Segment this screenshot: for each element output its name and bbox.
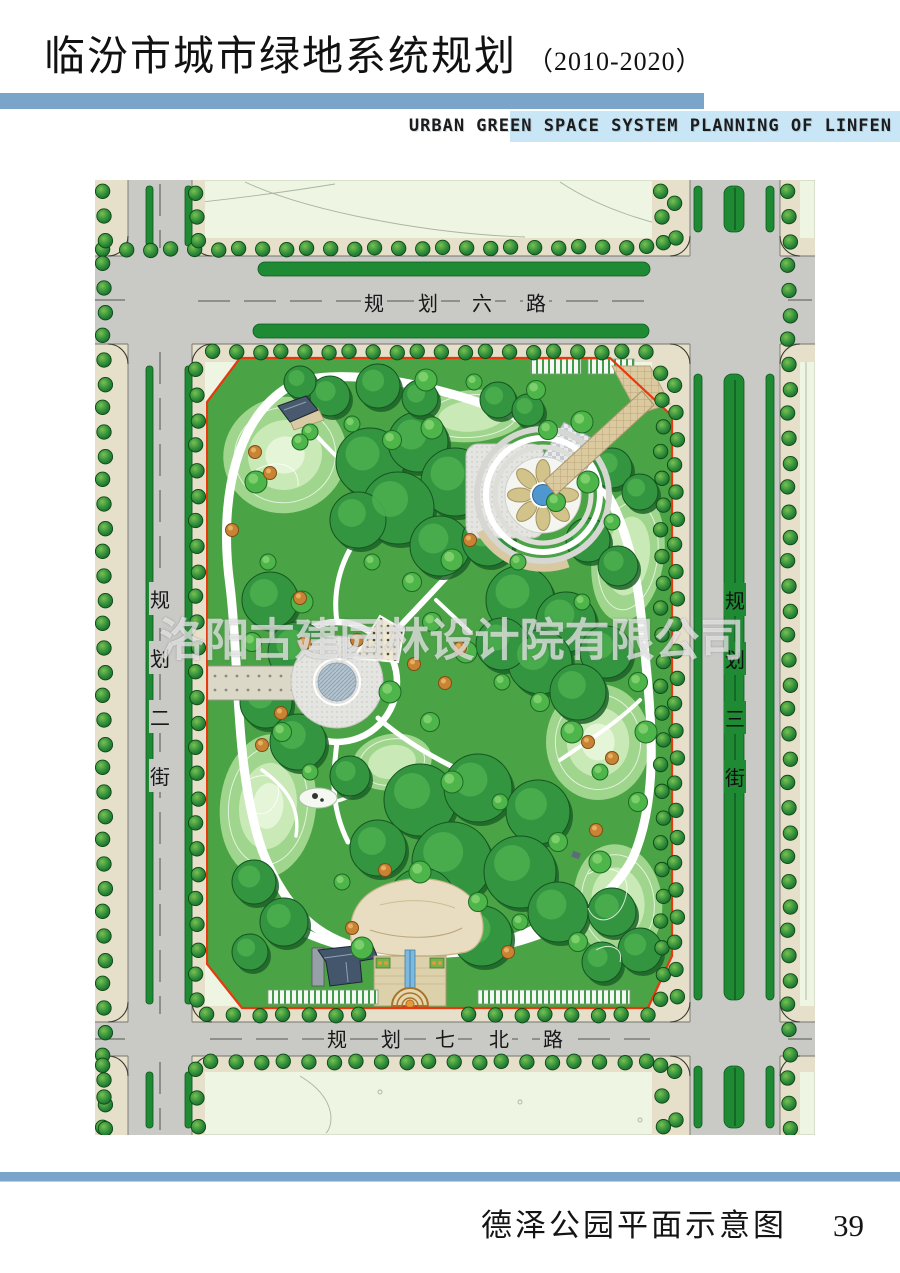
page-number: 39 [833, 1208, 864, 1243]
page-title: 临汾市城市绿地系统规划（2010-2020） [44, 22, 703, 82]
map-caption: 德泽公园平面示意图 [481, 1208, 787, 1243]
caption-row: 德泽公园平面示意图39 [481, 1200, 864, 1245]
plan-svg [95, 180, 815, 1135]
title-period: （2010-2020） [527, 47, 703, 76]
header-bar [0, 93, 704, 109]
title-cn: 临汾市城市绿地系统规划 [44, 33, 517, 79]
footer-bar [0, 1172, 900, 1182]
park-plan-map: 规划六路 规划七北路 规划二街 规划三街 洛阳古建园林设计院有限公司 [95, 180, 815, 1135]
document-page: 临汾市城市绿地系统规划（2010-2020） URBAN GREEN SPACE… [0, 0, 900, 1273]
subtitle-en: URBAN GREEN SPACE SYSTEM PLANNING OF LIN… [409, 111, 892, 142]
